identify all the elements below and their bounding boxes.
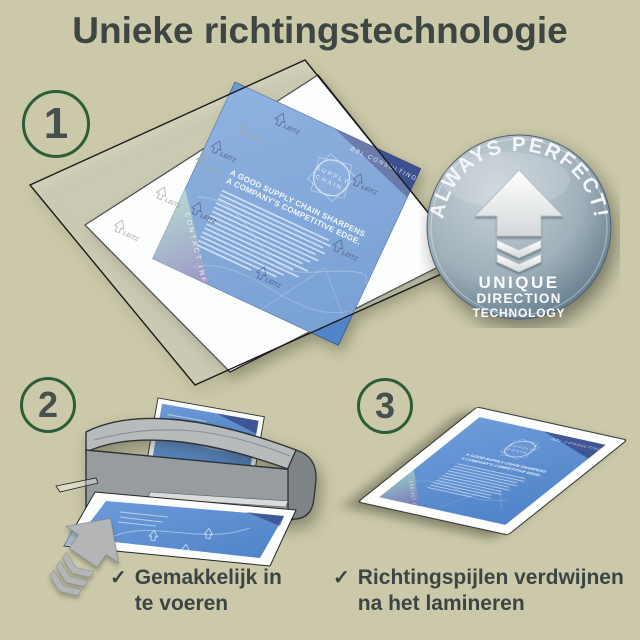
- machine-end-cap: [288, 450, 316, 519]
- product-infographic: Unieke richtingstechnologie 1 2 3 BB: [0, 0, 640, 640]
- checklist-1-line2: te voeren: [135, 591, 282, 617]
- checklist-1-line1: Gemakkelijk in: [135, 565, 282, 591]
- laminated-sheet: BBL CONSULTING SUPPLY CHAIN A GOOD SUPPL…: [358, 407, 627, 535]
- checklist-item-easy-feed: ✓ Gemakkelijk in te voeren: [110, 565, 282, 617]
- badge-line1: UNIQUE: [478, 273, 559, 292]
- checklist-2-line1: Richtingspijlen verdwijnen: [358, 565, 624, 591]
- always-perfect-badge: ALWAYS PERFECT! UNIQUE DIRECTION TECHNOL…: [420, 128, 620, 328]
- badge-line3: TECHNOLOGY: [473, 306, 566, 320]
- page-title: Unieke richtingstechnologie: [0, 10, 640, 52]
- laminated-document-illustration: BBL CONSULTING SUPPLY CHAIN A GOOD SUPPL…: [330, 378, 640, 578]
- checklist-item-arrows-disappear: ✓ Richtingspijlen verdwijnen na het lami…: [333, 565, 624, 617]
- pouch-insert-illustration: BBL CONSULTING SUPPLY CHAIN A GOOD SUPPL…: [0, 55, 480, 400]
- pouch-film: [30, 60, 468, 385]
- checkmark-icon: ✓: [110, 565, 127, 617]
- checkmark-icon: ✓: [333, 565, 350, 617]
- badge-line2: DIRECTION: [476, 291, 561, 306]
- checklist-2-line2: na het lamineren: [358, 591, 624, 617]
